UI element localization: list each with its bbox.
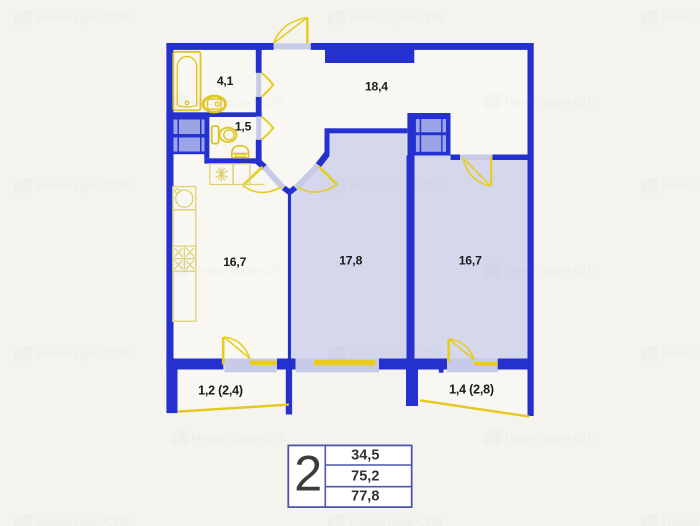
svg-text:1,2 (2,4): 1,2 (2,4) — [198, 383, 243, 397]
svg-text:2: 2 — [294, 445, 322, 502]
svg-text:16,7: 16,7 — [223, 255, 246, 269]
svg-text:77,8: 77,8 — [351, 489, 379, 505]
svg-text:17,8: 17,8 — [339, 253, 362, 267]
svg-text:1,5: 1,5 — [235, 119, 252, 133]
svg-text:16,7: 16,7 — [459, 253, 482, 267]
svg-text:75,2: 75,2 — [351, 468, 379, 484]
svg-text:1,4 (2,8): 1,4 (2,8) — [449, 383, 494, 397]
svg-text:4,1: 4,1 — [217, 74, 234, 88]
svg-text:34,5: 34,5 — [351, 448, 379, 464]
svg-text:18,4: 18,4 — [365, 79, 388, 93]
